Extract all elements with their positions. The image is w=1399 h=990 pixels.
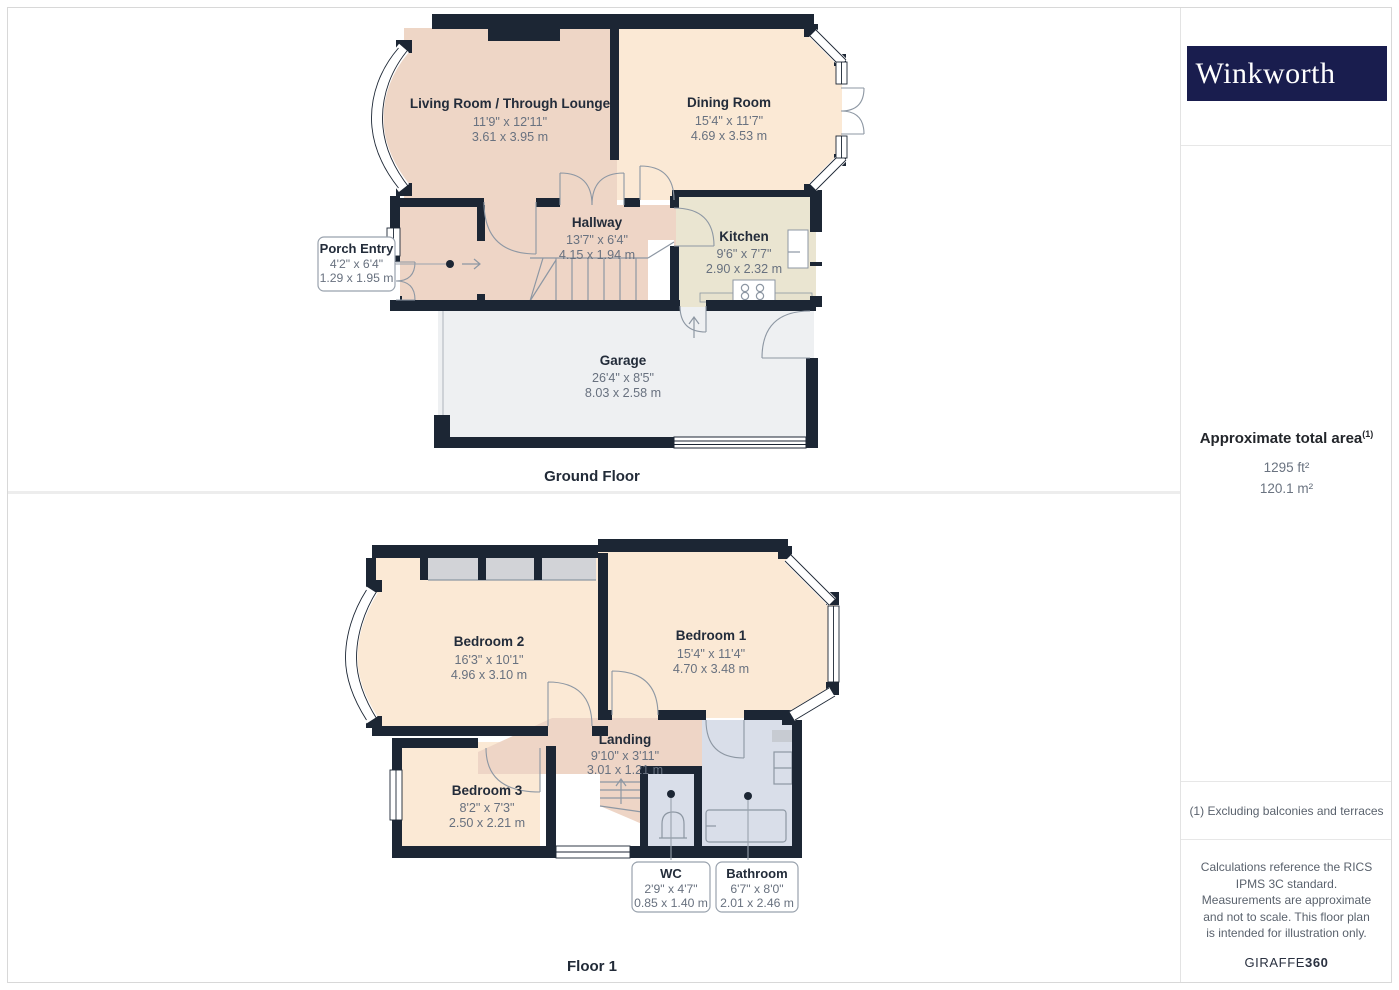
- wc-leader-dot: [667, 790, 675, 798]
- info-sidebar: Winkworth Approximate total area(1) 1295…: [1180, 7, 1392, 983]
- section-divider: [8, 491, 1180, 494]
- credit-suffix: 360: [1305, 955, 1329, 970]
- kitchen-dims-metric: 2.90 x 2.32 m: [706, 262, 782, 276]
- dining-dims-imperial: 15'4" x 11'7": [695, 114, 763, 128]
- bathroom-dims-imperial: 6'7" x 8'0": [730, 882, 783, 896]
- porch-name: Porch Entry: [320, 241, 394, 256]
- hallway-name: Hallway: [572, 215, 623, 230]
- stair-void: [556, 774, 600, 846]
- first-floor-label: Floor 1: [567, 958, 617, 975]
- bedroom2-dims-metric: 4.96 x 3.10 m: [451, 668, 527, 682]
- porch-dims-metric: 1.29 x 1.95 m: [320, 271, 394, 285]
- radiator: [772, 730, 792, 742]
- hallway-dims-metric: 4.15 x 1.94 m: [559, 248, 635, 262]
- dining-dims-metric: 4.69 x 3.53 m: [691, 129, 767, 143]
- kitchen-sink: [788, 230, 808, 268]
- porch-dims-imperial: 4'2" x 6'4": [330, 257, 383, 271]
- bathroom-dims-metric: 2.01 x 2.46 m: [720, 896, 794, 910]
- garage-dims-imperial: 26'4" x 8'5": [592, 371, 654, 385]
- kitchen-dims-imperial: 9'6" x 7'7": [716, 247, 771, 261]
- floorplan-page: Porch Entry 4'2" x 6'4" 1.29 x 1.95 m Li…: [0, 0, 1399, 990]
- landing-dims-metric: 3.01 x 1.21 m: [587, 763, 663, 777]
- bedroom2-name: Bedroom 2: [454, 634, 525, 649]
- total-area-values: 1295 ft² 120.1 m²: [1260, 457, 1313, 499]
- bedroom1-name: Bedroom 1: [676, 628, 747, 643]
- hob: [733, 280, 775, 302]
- footnote-text: (1) Excluding balconies and terraces: [1189, 804, 1383, 818]
- landing-dims-imperial: 9'10" x 3'11": [591, 749, 659, 763]
- hallway-dims-imperial: 13'7" x 6'4": [566, 233, 628, 247]
- total-area-superscript: (1): [1362, 429, 1373, 439]
- winkworth-logo: Winkworth: [1187, 46, 1387, 101]
- wc-dims-metric: 0.85 x 1.40 m: [634, 896, 708, 910]
- bedroom2-dims-imperial: 16'3" x 10'1": [454, 653, 523, 667]
- closet-band: [428, 558, 596, 580]
- area-section: Approximate total area(1) 1295 ft² 120.1…: [1181, 146, 1392, 781]
- wc-dims-imperial: 2'9" x 4'7": [644, 882, 697, 896]
- total-area-title-text: Approximate total area: [1200, 430, 1363, 447]
- bedroom3-dims-metric: 2.50 x 2.21 m: [449, 816, 525, 830]
- ground-floor-label: Ground Floor: [544, 468, 640, 485]
- garage-name: Garage: [600, 353, 647, 368]
- disclaimer-text: Calculations reference the RICS IPMS 3C …: [1201, 859, 1373, 942]
- total-area-title: Approximate total area(1): [1200, 429, 1374, 447]
- total-area-imperial: 1295 ft²: [1260, 457, 1313, 478]
- living-dims-imperial: 11'9" x 12'11": [473, 115, 547, 129]
- bathroom-name: Bathroom: [726, 866, 787, 881]
- bedroom1-dims-metric: 4.70 x 3.48 m: [673, 662, 749, 676]
- garage-door: [674, 437, 806, 448]
- bathroom-leader-dot: [744, 792, 752, 800]
- french-doors: [841, 88, 864, 134]
- giraffe360-credit: GIRAFFE360: [1181, 955, 1392, 970]
- bedroom3-name: Bedroom 3: [452, 783, 523, 798]
- living-name: Living Room / Through Lounge: [410, 96, 611, 111]
- disclaimer-section: Calculations reference the RICS IPMS 3C …: [1181, 839, 1392, 983]
- winkworth-logo-text: Winkworth: [1196, 57, 1336, 91]
- kitchen-name: Kitchen: [719, 229, 769, 244]
- first-floor-plan: WC 2'9" x 4'7" 0.85 x 1.40 m Bathroom 6'…: [0, 494, 1180, 990]
- total-area-metric: 120.1 m²: [1260, 478, 1313, 499]
- credit-brand: GIRAFFE: [1244, 955, 1305, 970]
- footnote-section: (1) Excluding balconies and terraces: [1181, 781, 1392, 839]
- logo-section: Winkworth: [1181, 7, 1392, 146]
- bedroom1-dims-imperial: 15'4" x 11'4": [677, 647, 745, 661]
- landing-name: Landing: [599, 732, 652, 747]
- wc-name: WC: [660, 866, 682, 881]
- bedroom3-dims-imperial: 8'2" x 7'3": [459, 801, 514, 815]
- garage-dims-metric: 8.03 x 2.58 m: [585, 386, 661, 400]
- dining-name: Dining Room: [687, 95, 771, 110]
- porch-leader-dot: [446, 260, 454, 268]
- living-dims-metric: 3.61 x 3.95 m: [472, 130, 548, 144]
- ground-floor-plan: Porch Entry 4'2" x 6'4" 1.29 x 1.95 m Li…: [0, 0, 1180, 494]
- first-room-fills: [351, 552, 836, 846]
